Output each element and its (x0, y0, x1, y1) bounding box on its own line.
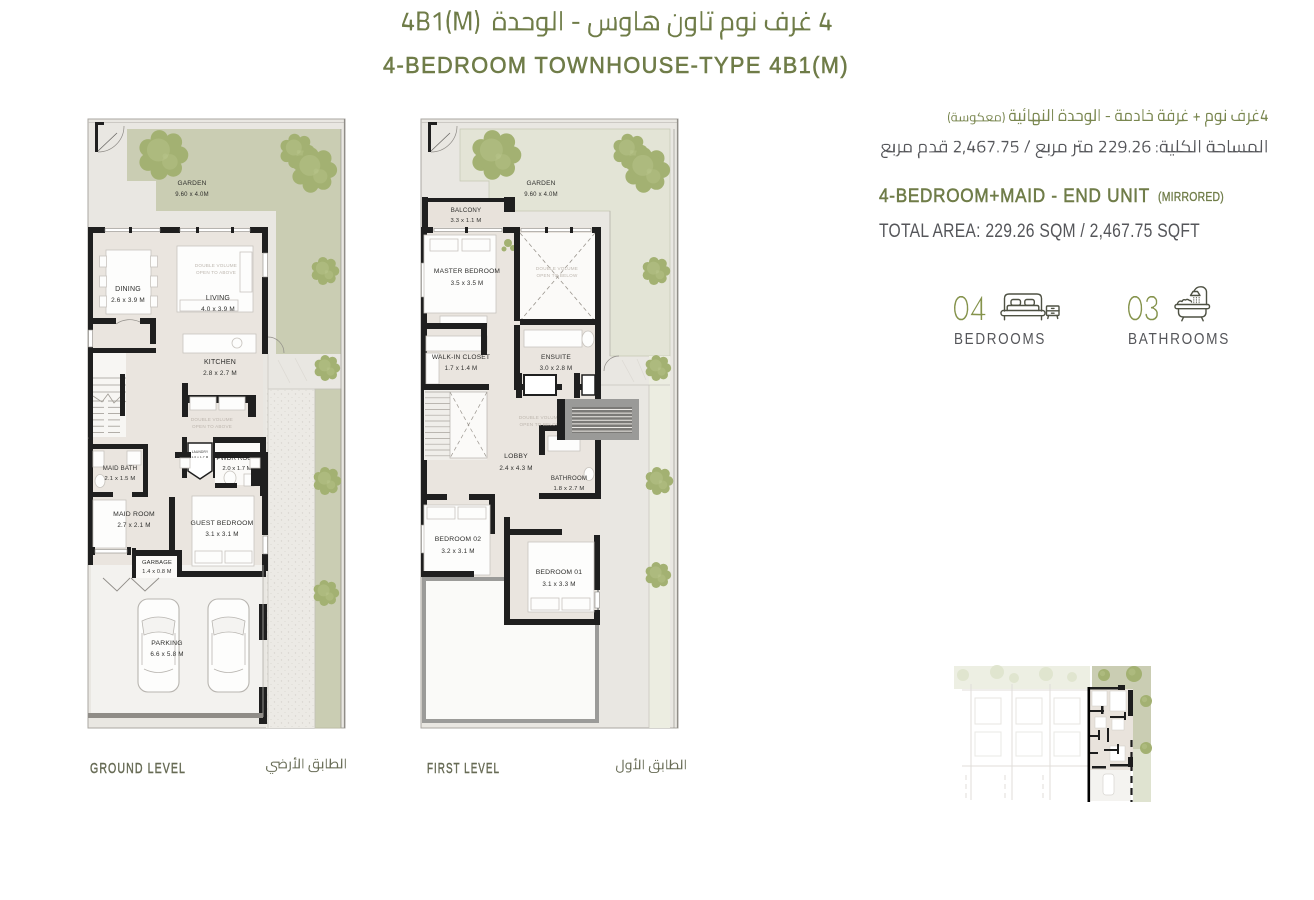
svg-text:WALK-IN CLOSET: WALK-IN CLOSET (432, 354, 490, 361)
svg-text:DOUBLE VOLUME: DOUBLE VOLUME (195, 263, 237, 268)
svg-text:3.1 x 3.3 M: 3.1 x 3.3 M (542, 581, 575, 588)
svg-text:BEDROOM 02: BEDROOM 02 (435, 536, 482, 543)
svg-text:3.5 x 3.5 M: 3.5 x 3.5 M (451, 280, 484, 287)
svg-text:1.4 x 0.8 M: 1.4 x 0.8 M (142, 569, 172, 575)
svg-text:BATHROOM: BATHROOM (551, 475, 587, 482)
svg-text:4-BEDROOM+MAID - END UNIT: 4-BEDROOM+MAID - END UNIT (879, 186, 1150, 207)
svg-text:DOUBLE VOLUME: DOUBLE VOLUME (536, 266, 578, 271)
svg-text:BEDROOMS: BEDROOMS (954, 331, 1046, 348)
svg-text:LOBBY: LOBBY (504, 453, 528, 460)
svg-text:BALCONY: BALCONY (451, 207, 482, 214)
svg-text:LAUNDRY: LAUNDRY (192, 450, 209, 454)
svg-text:GUEST BEDROOM: GUEST BEDROOM (191, 520, 254, 527)
svg-text:MAID BATH: MAID BATH (103, 465, 138, 472)
svg-text:DINING: DINING (115, 286, 141, 293)
svg-text:3.0 x 2.8 M: 3.0 x 2.8 M (540, 365, 573, 372)
svg-text:9.60 x 4.0M: 9.60 x 4.0M (175, 192, 209, 198)
svg-text:DOUBLE VOLUME: DOUBLE VOLUME (519, 415, 561, 420)
svg-text:1.0 x 1.7 M: 1.0 x 1.7 M (191, 455, 208, 459)
svg-text:4.0 x 3.9 M: 4.0 x 3.9 M (201, 306, 235, 313)
svg-text:2.1 x 1.5 M: 2.1 x 1.5 M (105, 476, 136, 482)
svg-text:3.1 x 3.1 M: 3.1 x 3.1 M (205, 531, 238, 538)
svg-text:ENSUITE: ENSUITE (541, 354, 571, 361)
svg-text:3.3 x 1.1 M: 3.3 x 1.1 M (451, 218, 482, 224)
svg-text:3.2 x 3.1 M: 3.2 x 3.1 M (441, 548, 474, 555)
svg-text:9.60 x 4.0M: 9.60 x 4.0M (524, 192, 558, 198)
svg-text:MASTER BEDROOM: MASTER BEDROOM (434, 268, 500, 275)
svg-text:PARKING: PARKING (151, 640, 183, 647)
svg-text:4-BEDROOM TOWNHOUSE-TYPE 4B1(M: 4-BEDROOM TOWNHOUSE-TYPE 4B1(M) (383, 52, 849, 78)
svg-text:OPEN TO ABOVE: OPEN TO ABOVE (192, 424, 232, 429)
svg-text:GARBAGE: GARBAGE (142, 560, 172, 566)
svg-text:BATHROOMS: BATHROOMS (1128, 331, 1230, 348)
svg-text:OPEN TO ABOVE: OPEN TO ABOVE (196, 270, 236, 275)
svg-text:GROUND LEVEL: GROUND LEVEL (90, 761, 186, 777)
svg-text:MAID ROOM: MAID ROOM (113, 511, 155, 518)
svg-text:2.6 x 3.9 M: 2.6 x 3.9 M (111, 297, 145, 304)
svg-text:KITCHEN: KITCHEN (204, 359, 236, 366)
svg-text:BEDROOM 01: BEDROOM 01 (536, 569, 583, 576)
svg-text:2.8 x 2.7 M: 2.8 x 2.7 M (203, 370, 237, 377)
svg-text:1.7 x 1.4 M: 1.7 x 1.4 M (445, 365, 478, 372)
svg-text:OPEN TO BELOW: OPEN TO BELOW (537, 273, 578, 278)
svg-text:FIRST LEVEL: FIRST LEVEL (427, 761, 500, 777)
svg-text:LIVING: LIVING (206, 295, 230, 302)
svg-text:GARDEN: GARDEN (526, 180, 555, 187)
svg-text:6.6 x 5.8 M: 6.6 x 5.8 M (150, 651, 183, 658)
svg-text:2.7 x 2.1 M: 2.7 x 2.1 M (117, 522, 150, 529)
svg-text:2.4 x 4.3 M: 2.4 x 4.3 M (499, 465, 532, 472)
svg-text:TOTAL AREA: 229.26 SQM / 2,467: TOTAL AREA: 229.26 SQM / 2,467.75 SQFT (879, 220, 1200, 242)
svg-text:(MIRRORED): (MIRRORED) (1158, 189, 1224, 204)
svg-text:1.8 x 2.7 M: 1.8 x 2.7 M (554, 486, 585, 492)
svg-text:GARDEN: GARDEN (177, 180, 206, 187)
svg-text:2.0 x 1.7 M: 2.0 x 1.7 M (222, 466, 251, 472)
svg-text:DOUBLE VOLUME: DOUBLE VOLUME (191, 417, 233, 422)
svg-text:OPEN TO BELOW: OPEN TO BELOW (520, 422, 561, 427)
